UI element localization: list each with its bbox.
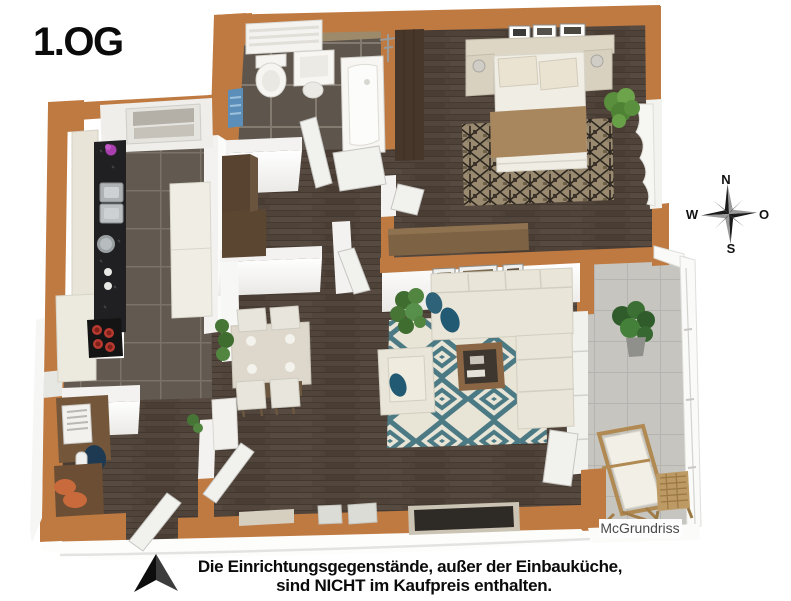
svg-text:N: N bbox=[721, 172, 730, 187]
svg-text:1.OG: 1.OG bbox=[33, 20, 123, 64]
svg-text:Die Einrichtungsgegenstände, a: Die Einrichtungsgegenstände, außer der E… bbox=[198, 557, 622, 576]
svg-text:McGrundriss: McGrundriss bbox=[600, 520, 679, 536]
svg-text:O: O bbox=[759, 207, 769, 222]
svg-text:W: W bbox=[686, 207, 699, 222]
svg-text:S: S bbox=[727, 241, 736, 256]
svg-text:sind NICHT im Kaufpreis enthal: sind NICHT im Kaufpreis enthalten. bbox=[276, 576, 552, 595]
